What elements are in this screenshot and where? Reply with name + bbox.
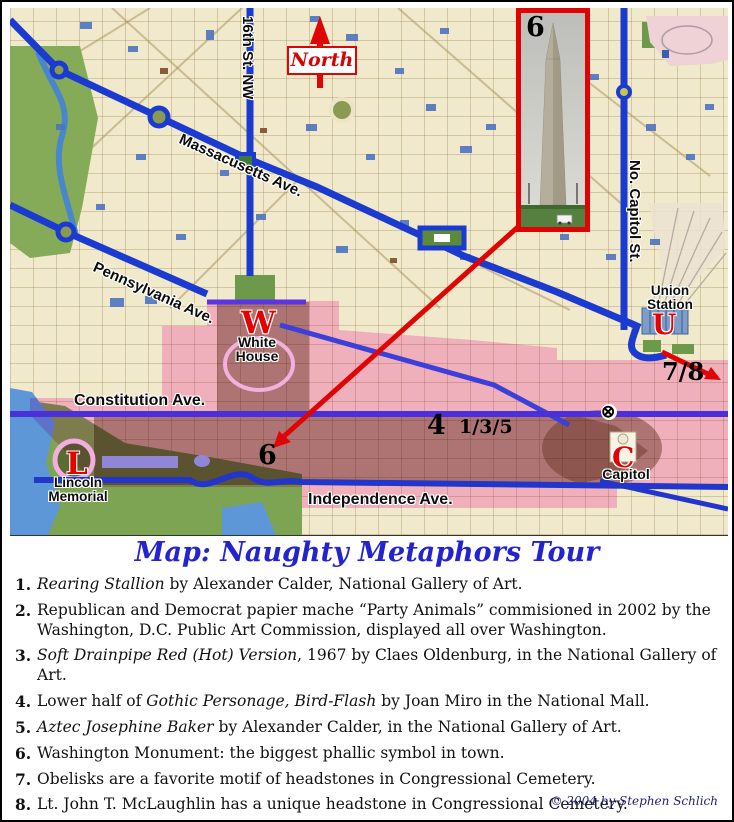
monument-inset-photo: 6 <box>516 8 590 232</box>
legend-item-text: Lower half of Gothic Personage, Bird-Fla… <box>37 692 724 712</box>
legend-item-number: 8. <box>15 795 37 815</box>
building-markers <box>56 16 714 307</box>
monument-inset-number: 6 <box>526 13 545 43</box>
legend-list: 1.Rearing Stallion by Alexander Calder, … <box>15 575 724 821</box>
legend-item-number: 1. <box>15 575 37 595</box>
lafayette-park <box>235 275 275 301</box>
constitution-ave-label: Constitution Ave. <box>74 392 205 410</box>
no-capitol-st-label: No. Capitol St. <box>626 160 643 263</box>
legend-item-text: Republican and Democrat papier mache “Pa… <box>37 601 724 641</box>
reflecting-pool <box>102 456 178 468</box>
mt-vernon-square <box>420 228 464 248</box>
legend-item: 7.Obelisks are a favorite motif of heads… <box>15 770 724 790</box>
legend-item-text: Aztec Josephine Baker by Alexander Calde… <box>37 718 724 738</box>
mall-number-4: 4 <box>427 412 446 439</box>
lincoln-memorial-label: Lincoln Memorial <box>38 476 118 504</box>
legend-item-number: 6. <box>15 744 37 764</box>
page: 6 North 16th St. NW No. Capitol St. Mass… <box>0 0 734 822</box>
legend-item-number: 3. <box>15 646 37 686</box>
legend-item-number: 5. <box>15 718 37 738</box>
mall-monument-number: 6 <box>258 442 277 469</box>
base-diagonal-streets <box>10 8 710 310</box>
legend-item-number: 4. <box>15 692 37 712</box>
cemetery-numbers: 7/8 <box>662 360 704 384</box>
north-label: North <box>287 46 357 75</box>
independence-ave-label: Independence Ave. <box>308 491 453 509</box>
legend-item: 2.Republican and Democrat papier mache “… <box>15 601 724 641</box>
legend-item-text: Rearing Stallion by Alexander Calder, Na… <box>37 575 724 595</box>
legend-item-number: 7. <box>15 770 37 790</box>
dc-street-map: 6 North 16th St. NW No. Capitol St. Mass… <box>10 8 728 536</box>
sixteenth-st-label: 16th St. NW <box>239 16 256 99</box>
gallery-numbers: 1/3/5 <box>459 418 513 437</box>
legend-item-text: Soft Drainpipe Red (Hot) Version, 1967 b… <box>37 646 724 686</box>
page-title: Map: Naughty Metaphors Tour <box>2 537 732 568</box>
union-station-letter: U <box>652 311 676 339</box>
white-house-label: White House <box>220 335 294 364</box>
minor-buildings <box>160 68 538 263</box>
legend-item: 1.Rearing Stallion by Alexander Calder, … <box>15 575 724 595</box>
monument-photo <box>521 13 585 227</box>
capitol-label: Capitol <box>592 467 660 481</box>
legend-item: 4.Lower half of Gothic Personage, Bird-F… <box>15 692 724 712</box>
legend-item: 5.Aztec Josephine Baker by Alexander Cal… <box>15 718 724 738</box>
union-station-label: Union Station <box>636 284 704 312</box>
legend-item: 3.Soft Drainpipe Red (Hot) Version, 1967… <box>15 646 724 686</box>
legend-item-number: 2. <box>15 601 37 641</box>
legend-item-text: Obelisks are a favorite motif of headsto… <box>37 770 724 790</box>
crossed-circle-marker: ⊗ <box>601 402 615 422</box>
legend-item: 6.Washington Monument: the biggest phall… <box>15 744 724 764</box>
eckington-area <box>646 16 728 66</box>
copyright: © 2004 by Stephen Schlich <box>551 794 718 808</box>
legend-item-text: Washington Monument: the biggest phallic… <box>37 744 724 764</box>
